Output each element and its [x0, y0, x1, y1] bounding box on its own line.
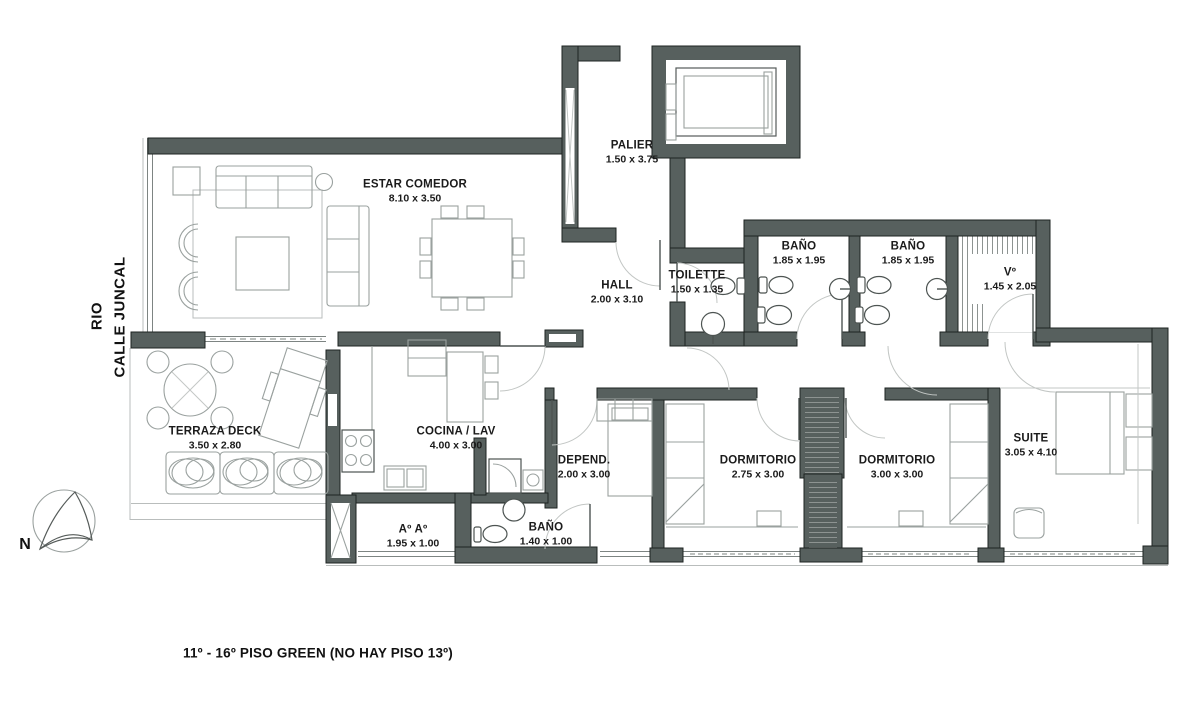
room-name: COCINA / LAV	[416, 425, 495, 440]
room-label-bano-2: BAÑO1.85 x 1.95	[882, 240, 935, 269]
room-label-hall: HALL2.00 x 3.10	[591, 279, 644, 308]
room-dimensions: 1.85 x 1.95	[773, 255, 826, 269]
room-label-bano-3: BAÑO1.40 x 1.00	[520, 521, 573, 550]
room-name: DORMITORIO	[720, 454, 797, 469]
room-label-dormitorio-2: DORMITORIO3.00 x 3.00	[859, 454, 936, 483]
room-label-aire-acond: Aº Aº1.95 x 1.00	[387, 523, 440, 552]
room-label-dependencia: DEPEND.2.00 x 3.00	[558, 454, 611, 483]
room-dimensions: 4.00 x 3.00	[416, 440, 495, 454]
room-name: TOILETTE	[669, 269, 726, 284]
room-dimensions: 1.50 x 3.75	[606, 154, 659, 168]
room-label-cocina-lav: COCINA / LAV4.00 x 3.00	[416, 425, 495, 454]
room-dimensions: 1.95 x 1.00	[387, 538, 440, 552]
room-name: BAÑO	[520, 521, 573, 536]
room-name: TERRAZA DECK	[169, 425, 262, 440]
room-name: BAÑO	[882, 240, 935, 255]
floor-plan-drawing	[0, 0, 1188, 705]
room-dimensions: 1.85 x 1.95	[882, 255, 935, 269]
room-dimensions: 3.00 x 3.00	[859, 469, 936, 483]
room-dimensions: 2.75 x 3.00	[720, 469, 797, 483]
room-name: DEPEND.	[558, 454, 611, 469]
room-dimensions: 8.10 x 3.50	[363, 193, 467, 207]
street-label-calle-juncal: CALLE JUNCAL	[112, 257, 129, 378]
room-name: Aº Aº	[387, 523, 440, 538]
floor-caption: 11º - 16º PISO GREEN (NO HAY PISO 13º)	[183, 646, 453, 661]
room-label-suite: SUITE3.05 x 4.10	[1005, 432, 1058, 461]
compass-icon	[33, 490, 95, 552]
room-dimensions: 2.00 x 3.10	[591, 294, 644, 308]
floor-plan-page: ESTAR COMEDOR8.10 x 3.50PALIER1.50 x 3.7…	[0, 0, 1188, 705]
room-label-estar-comedor: ESTAR COMEDOR8.10 x 3.50	[363, 178, 467, 207]
room-dimensions: 3.50 x 2.80	[169, 440, 262, 454]
room-label-bano-1: BAÑO1.85 x 1.95	[773, 240, 826, 269]
room-dimensions: 1.40 x 1.00	[520, 536, 573, 550]
room-dimensions: 3.05 x 4.10	[1005, 447, 1058, 461]
room-label-vestidor: Vº1.45 x 2.05	[984, 266, 1037, 295]
compass-north-label: N	[19, 536, 31, 554]
room-dimensions: 2.00 x 3.00	[558, 469, 611, 483]
room-label-toilette: TOILETTE1.50 x 1.35	[669, 269, 726, 298]
room-dimensions: 1.45 x 2.05	[984, 281, 1037, 295]
room-label-dormitorio-1: DORMITORIO2.75 x 3.00	[720, 454, 797, 483]
room-name: DORMITORIO	[859, 454, 936, 469]
planters	[166, 452, 328, 494]
room-name: HALL	[591, 279, 644, 294]
room-name: ESTAR COMEDOR	[363, 178, 467, 193]
room-label-terraza-deck: TERRAZA DECK3.50 x 2.80	[169, 425, 262, 454]
room-name: BAÑO	[773, 240, 826, 255]
street-label-rio: RIO	[89, 302, 106, 330]
room-dimensions: 1.50 x 1.35	[669, 284, 726, 298]
room-name: PALIER	[606, 139, 659, 154]
room-label-palier: PALIER1.50 x 3.75	[606, 139, 659, 168]
room-name: SUITE	[1005, 432, 1058, 447]
room-name: Vº	[984, 266, 1037, 281]
